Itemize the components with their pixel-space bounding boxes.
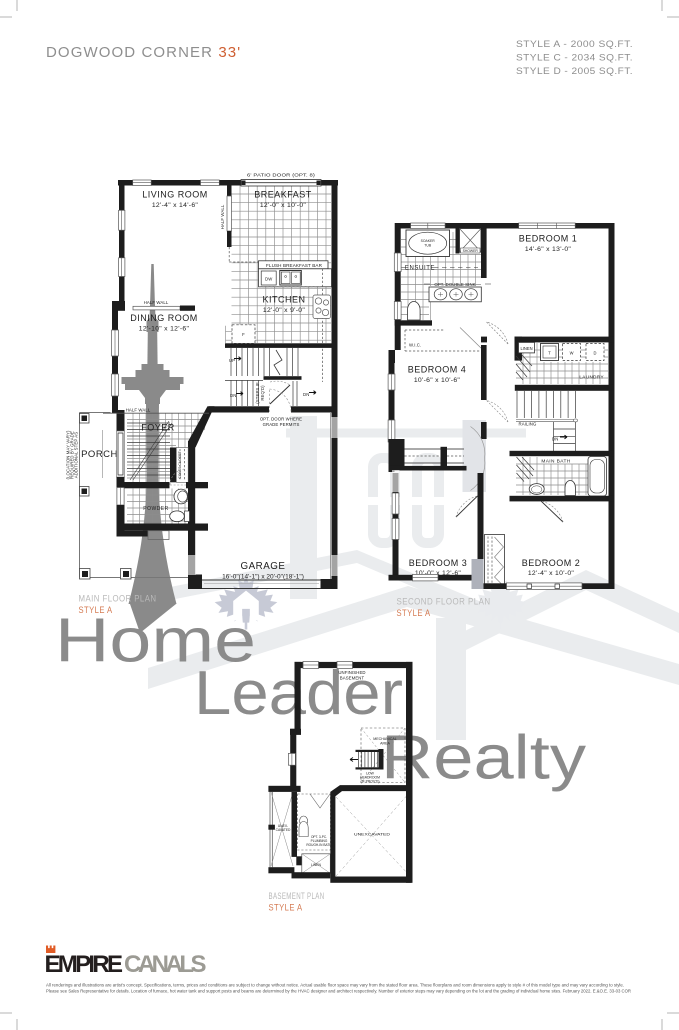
svg-text:DOGWOOD CORNER 33': DOGWOOD CORNER 33' [46,44,241,61]
svg-text:LAUNDRY: LAUNDRY [579,375,604,380]
svg-text:HALF WALL: HALF WALL [220,204,225,229]
svg-text:FLUSH BREAKFAST BAR: FLUSH BREAKFAST BAR [266,263,322,268]
svg-text:EMPIRE: EMPIRE [45,951,123,978]
svg-text:12'-10" x 12'-6": 12'-10" x 12'-6" [139,326,190,333]
svg-text:W.I.C.: W.I.C. [409,343,421,348]
svg-text:LIVING ROOM: LIVING ROOM [142,190,208,200]
svg-text:KITCHEN: KITCHEN [262,295,305,305]
svg-text:GARAGE: GARAGE [241,561,286,572]
svg-text:PORCH: PORCH [81,449,118,460]
svg-text:MAIN BATH: MAIN BATH [541,459,570,465]
svg-text:12'-0" x 9'-0": 12'-0" x 9'-0" [263,307,306,314]
svg-text:HALF WALL: HALF WALL [144,300,169,305]
svg-text:SHOWER: SHOWER [463,249,479,253]
svg-text:F: F [242,332,245,337]
svg-text:DINING ROOM: DINING ROOM [130,313,198,323]
svg-text:CANALS: CANALS [124,951,206,978]
svg-text:(LOCATION MAY VARY): (LOCATION MAY VARY) [66,430,71,479]
svg-text:12'-4" x 10'-0": 12'-4" x 10'-0" [528,570,575,577]
svg-text:RAILING: RAILING [519,422,537,427]
svg-text:DN: DN [230,393,236,398]
svg-text:OPT. DOOR WHERE: OPT. DOOR WHERE [260,417,302,422]
svg-text:STYLE D - 2005 SQ.FT.: STYLE D - 2005 SQ.FT. [516,66,633,76]
svg-text:MAIN FLOOR PLAN: MAIN FLOOR PLAN [79,594,157,604]
svg-text:DN: DN [552,437,558,442]
svg-text:POWDER: POWDER [143,506,169,512]
svg-text:STYLE A: STYLE A [79,605,113,615]
svg-text:AREA: AREA [380,742,390,746]
svg-text:BASEMENT PLAN: BASEMENT PLAN [269,891,325,901]
svg-text:All renderings and illustratio: All renderings and illustrations are art… [46,983,624,988]
svg-text:FOYER: FOYER [141,423,175,433]
svg-text:Please see Sales Representativ: Please see Sales Representative for deta… [46,989,631,994]
svg-text:10'-6" x 10'-6": 10'-6" x 10'-6" [414,377,461,384]
svg-text:6' PATIO DOOR (OPT. 8): 6' PATIO DOOR (OPT. 8) [247,173,316,178]
svg-text:W: W [570,351,574,356]
svg-text:UNEXCAVATED: UNEXCAVATED [354,832,390,837]
svg-text:SECOND FLOOR PLAN: SECOND FLOOR PLAN [397,597,491,607]
svg-text:(IF PROV'D): (IF PROV'D) [361,780,380,784]
svg-text:UNFINISHED: UNFINISHED [338,670,365,675]
svg-text:12'-0" x 10'-0": 12'-0" x 10'-0" [260,202,307,209]
svg-text:STYLE A: STYLE A [269,903,303,913]
svg-text:STYLE C - 2034 SQ.FT.: STYLE C - 2034 SQ.FT. [516,53,633,63]
svg-text:16'-0"(14'-1") x 20'-0"(18'-1": 16'-0"(14'-1") x 20'-0"(18'-1") [222,574,304,581]
svg-text:BEDROOM 3: BEDROOM 3 [409,558,468,568]
svg-text:GRADE PERMITS: GRADE PERMITS [263,422,300,427]
svg-text:DW: DW [265,277,273,282]
svg-text:CAVATED: CAVATED [276,828,291,832]
svg-text:SOAKER: SOAKER [421,239,436,243]
svg-text:ROUGH-IN BATH: ROUGH-IN BATH [306,843,332,847]
svg-text:COATS CLOSET: COATS CLOSET [178,450,182,478]
svg-text:STYLE A: STYLE A [397,608,431,618]
svg-text:OPT. DOUBLE SINK: OPT. DOUBLE SINK [434,282,475,287]
svg-text:BASEMENT: BASEMENT [340,676,365,681]
svg-text:BREAKFAST: BREAKFAST [254,190,312,200]
svg-text:BEDROOM 2: BEDROOM 2 [522,558,581,568]
svg-text:LINEN: LINEN [311,863,322,867]
svg-text:12'-4" x 14'-6": 12'-4" x 14'-6" [152,202,199,209]
svg-text:LINEN: LINEN [520,346,532,351]
svg-text:HALF WALL: HALF WALL [126,408,151,413]
svg-text:TUB: TUB [424,243,432,247]
svg-text:D: D [594,351,597,356]
svg-text:14'-6" x 13'-0": 14'-6" x 13'-0" [525,246,572,253]
svg-text:STYLE A - 2000 SQ.FT.: STYLE A - 2000 SQ.FT. [516,39,633,49]
svg-text:ENSUITE: ENSUITE [405,266,435,272]
svg-text:BEDROOM 4: BEDROOM 4 [408,365,467,375]
svg-text:MECHANICAL: MECHANICAL [373,737,397,741]
svg-text:REQ'D): REQ'D) [260,385,265,401]
svg-text:DN: DN [303,392,309,397]
svg-text:BEDROOM 1: BEDROOM 1 [519,234,578,244]
